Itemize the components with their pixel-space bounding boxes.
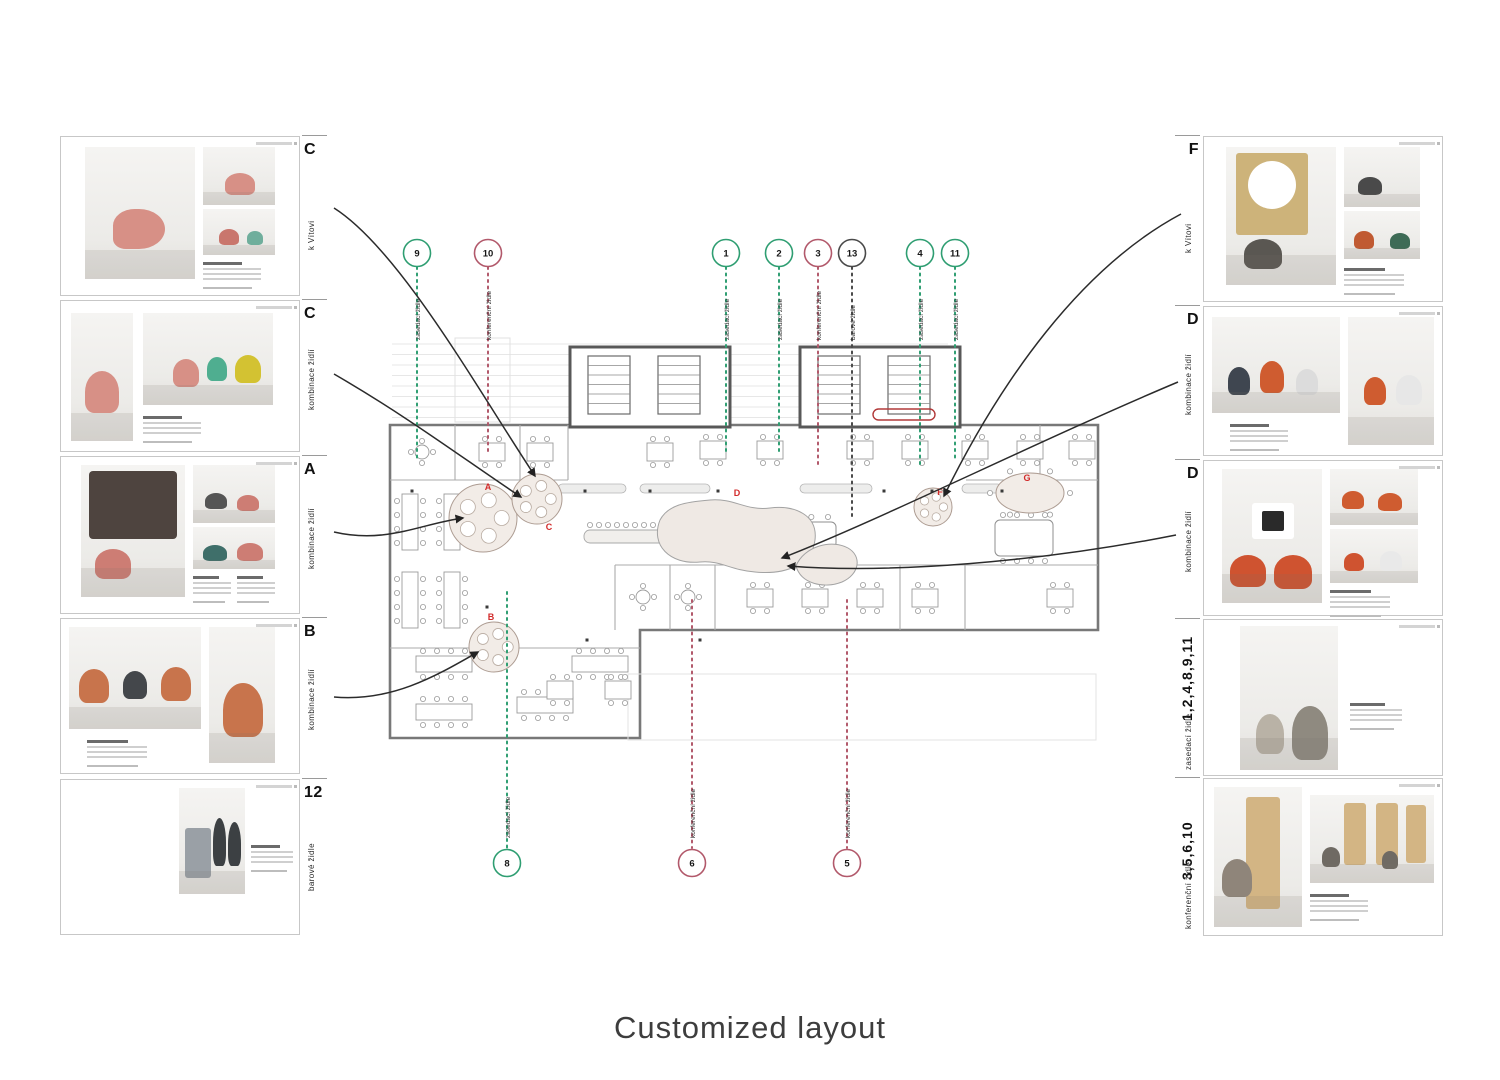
catalog-card-left-0: [60, 136, 300, 296]
card-page-header: [256, 142, 292, 145]
card-category-label: k Vítovi: [1184, 189, 1193, 253]
furniture-photo: [71, 313, 133, 441]
card-category-label: kombinace židlí: [1184, 508, 1193, 572]
chair: [632, 522, 637, 527]
chair: [864, 434, 869, 439]
furniture-shape: [1358, 177, 1382, 195]
chair: [576, 674, 581, 679]
chair: [462, 696, 467, 701]
pod-seat: [536, 507, 547, 518]
furniture-photo: [1240, 626, 1338, 770]
desk-cluster: [847, 441, 873, 459]
chair: [1050, 582, 1055, 587]
furniture-photo: [203, 209, 275, 255]
chair: [420, 590, 425, 595]
desk-cluster: [912, 589, 938, 607]
long-table: [572, 656, 628, 672]
chair: [1086, 434, 1091, 439]
desk-cluster: [747, 589, 773, 607]
pod-seat: [932, 513, 940, 521]
chair: [394, 604, 399, 609]
product-text-block: [143, 413, 201, 446]
chair: [530, 462, 535, 467]
chair: [462, 648, 467, 653]
conference-table: [995, 520, 1053, 556]
pod-seat: [520, 485, 531, 496]
plan-letter-A: A: [485, 482, 492, 492]
card-index-label: C: [304, 141, 326, 159]
furniture-shape: [1246, 797, 1280, 909]
chair: [521, 715, 526, 720]
chair: [750, 608, 755, 613]
furniture-shape: [237, 495, 259, 511]
leader-label-13: barové židle: [850, 305, 857, 340]
plan-letter-C: C: [546, 522, 553, 532]
furniture-photo: [1344, 147, 1420, 207]
chair: [1067, 490, 1072, 495]
callout-number-4: 4: [917, 248, 923, 259]
chair: [430, 449, 435, 454]
gutter-tick: [1175, 459, 1200, 460]
chair: [1020, 460, 1025, 465]
chair: [587, 522, 592, 527]
long-table: [416, 656, 472, 672]
callout-number-5: 5: [844, 858, 850, 869]
desk-cluster: [1069, 441, 1095, 459]
chair: [1072, 434, 1077, 439]
furniture-photo: [209, 627, 275, 763]
chair: [674, 594, 679, 599]
card-index-label: F: [1177, 141, 1199, 159]
gutter-tick: [302, 455, 327, 456]
chair: [436, 512, 441, 517]
desk-cluster: [647, 443, 673, 461]
card-category-label: k Vítovi: [307, 186, 316, 250]
furniture-shape: [1364, 377, 1386, 405]
desk-cluster: [962, 441, 988, 459]
gutter-tick: [302, 299, 327, 300]
terrace-outline: [628, 674, 1096, 740]
core-block: [800, 347, 960, 427]
furniture-shape: [228, 822, 241, 866]
chair: [394, 576, 399, 581]
furniture-shape: [203, 545, 227, 561]
furniture-shape: [1292, 706, 1328, 760]
chair: [1034, 460, 1039, 465]
corridor-counter: [800, 484, 872, 493]
furniture-shape: [1380, 551, 1402, 571]
furniture-shape: [247, 231, 263, 245]
leader-label-8: zasedací židle: [505, 796, 512, 838]
chair: [717, 460, 722, 465]
chair: [496, 436, 501, 441]
furniture-shape: [79, 669, 109, 703]
chair: [596, 522, 601, 527]
chair: [685, 583, 690, 588]
furniture-shape: [1256, 714, 1284, 754]
furniture-shape: [85, 371, 119, 413]
furniture-shape: [219, 229, 239, 245]
chair: [1000, 512, 1005, 517]
chair: [651, 594, 656, 599]
chair: [1042, 558, 1047, 563]
leader-label-2: zasedací židle: [777, 298, 784, 340]
chair: [717, 434, 722, 439]
gutter-tick: [1175, 135, 1200, 136]
facade-bay: [455, 338, 510, 422]
long-table: [402, 572, 418, 628]
chair: [641, 522, 646, 527]
card-index-label: 12: [304, 784, 326, 802]
chair: [614, 522, 619, 527]
card-category-label: kombinace židlí: [307, 346, 316, 410]
gutter-tick: [302, 617, 327, 618]
furniture-photo: [1212, 317, 1340, 413]
desk-cluster: [857, 589, 883, 607]
chair: [420, 696, 425, 701]
product-text-block: [1310, 891, 1368, 924]
card-category-label: barové židle: [307, 827, 316, 891]
chair: [905, 434, 910, 439]
chair: [905, 460, 910, 465]
furniture-shape: [237, 543, 263, 561]
card-page-header: [256, 306, 292, 309]
gutter-tick: [1175, 618, 1200, 619]
desk-cluster: [1047, 589, 1073, 607]
furniture-photo: [1330, 469, 1418, 525]
chair: [408, 449, 413, 454]
chair: [420, 648, 425, 653]
chair: [394, 498, 399, 503]
furniture-shape: [1406, 805, 1426, 863]
furniture-photo: [1226, 147, 1336, 285]
callout-number-6: 6: [689, 858, 694, 869]
leader-label-1: zasedací židle: [724, 298, 731, 340]
chair: [1034, 434, 1039, 439]
callout-number-1: 1: [723, 248, 729, 259]
chair: [760, 434, 765, 439]
chair: [436, 590, 441, 595]
chair: [436, 526, 441, 531]
chair: [1020, 434, 1025, 439]
chair: [462, 674, 467, 679]
chair: [535, 715, 540, 720]
chair: [874, 608, 879, 613]
furniture-shape: [1382, 851, 1398, 869]
furniture-shape: [1228, 367, 1250, 395]
gutter-tick: [302, 135, 327, 136]
furniture-shape: [207, 357, 227, 381]
card-category-label: kombinace židlí: [1184, 351, 1193, 415]
furniture-shape: [235, 355, 261, 383]
furniture-shape: [113, 209, 165, 249]
furniture-shape: [1344, 553, 1364, 571]
chair: [650, 522, 655, 527]
pod-seat: [481, 528, 496, 543]
chair: [420, 498, 425, 503]
chair: [819, 608, 824, 613]
chair: [605, 522, 610, 527]
catalog-card-right-3: [1203, 619, 1443, 776]
furniture-shape: [223, 683, 263, 737]
chair: [874, 582, 879, 587]
catalog-card-right-4: [1203, 778, 1443, 936]
furniture-photo: [193, 465, 275, 523]
card-page-header: [1399, 312, 1435, 315]
chair: [420, 604, 425, 609]
furniture-shape: [1260, 361, 1284, 393]
leader-label-4: zasedací židle: [918, 298, 925, 340]
catalog-card-left-1: [60, 300, 300, 452]
catalog-card-left-4: [60, 779, 300, 935]
chair: [987, 490, 992, 495]
chair: [420, 674, 425, 679]
furniture-shape: [173, 359, 199, 387]
chair: [640, 605, 645, 610]
chair: [640, 583, 645, 588]
chair: [550, 674, 555, 679]
chair: [394, 540, 399, 545]
callout-number-9: 9: [414, 248, 419, 259]
chair: [623, 522, 628, 527]
pod-seat: [520, 502, 531, 513]
chair: [979, 460, 984, 465]
chair: [420, 512, 425, 517]
chair: [434, 696, 439, 701]
chair: [462, 576, 467, 581]
catalog-card-right-1: [1203, 306, 1443, 456]
furniture-photo: [81, 465, 185, 597]
chair: [394, 590, 399, 595]
pod-seat: [477, 633, 488, 644]
product-text-block: [193, 573, 231, 606]
chair: [764, 608, 769, 613]
card-page-header: [1399, 784, 1435, 787]
plan-node-dot: [1001, 490, 1004, 493]
chair: [929, 608, 934, 613]
card-index-label: A: [304, 461, 326, 479]
desk-cluster: [902, 441, 928, 459]
pod-seat: [481, 493, 496, 508]
furniture-photo: [1310, 795, 1434, 883]
furniture-shape: [1378, 493, 1402, 511]
chair: [965, 460, 970, 465]
furniture-photo: [1348, 317, 1434, 445]
gutter-tick: [1175, 305, 1200, 306]
gutter-tick: [1175, 777, 1200, 778]
chair: [436, 618, 441, 623]
chair: [448, 674, 453, 679]
chair: [805, 582, 810, 587]
chair: [825, 514, 830, 519]
furniture-photo: [203, 147, 275, 205]
furniture-shape: [1322, 847, 1340, 867]
chair: [462, 604, 467, 609]
chair: [482, 436, 487, 441]
chair: [860, 582, 865, 587]
chair: [1014, 512, 1019, 517]
catalog-card-left-2: [60, 456, 300, 614]
product-text-block: [1350, 700, 1402, 733]
chair: [419, 460, 424, 465]
furniture-shape: [1244, 239, 1282, 269]
chair: [622, 674, 627, 679]
furniture-photo: [1344, 211, 1420, 259]
chair: [482, 462, 487, 467]
card-category-label: kombinace židlí: [307, 505, 316, 569]
chair: [1086, 460, 1091, 465]
product-text-block: [237, 573, 275, 606]
chair: [1047, 469, 1052, 474]
product-text-block: [203, 259, 261, 292]
chair: [535, 689, 540, 694]
chair: [420, 722, 425, 727]
furniture-shape: [205, 493, 227, 509]
callout-number-3: 3: [815, 248, 820, 259]
chair: [629, 594, 634, 599]
card-page-header: [1399, 625, 1435, 628]
chair: [436, 498, 441, 503]
chair: [436, 604, 441, 609]
chair: [604, 648, 609, 653]
chair: [462, 618, 467, 623]
plan-letter-G: G: [1023, 473, 1030, 483]
furniture-shape: [1390, 233, 1410, 249]
pod-seat: [536, 480, 547, 491]
pod-seat: [493, 628, 504, 639]
pod-seat: [460, 522, 475, 537]
chair: [664, 436, 669, 441]
furniture-shape: [1296, 369, 1318, 395]
pod-seat: [477, 650, 488, 661]
furniture-shape: [1262, 511, 1284, 531]
core-block: [570, 347, 730, 427]
catalog-card-right-0: [1203, 136, 1443, 302]
leader-label-9: zasedací židle: [415, 298, 422, 340]
long-table: [402, 494, 418, 550]
chair: [448, 648, 453, 653]
chair: [760, 460, 765, 465]
card-page-header: [256, 785, 292, 788]
plan-letter-B: B: [488, 612, 495, 622]
pod-seat: [494, 511, 509, 526]
furniture-shape: [1354, 231, 1374, 249]
plan-node-dot: [699, 639, 702, 642]
chair: [521, 689, 526, 694]
chair: [436, 540, 441, 545]
chair: [434, 648, 439, 653]
chair: [419, 438, 424, 443]
chair: [915, 608, 920, 613]
gutter-tick: [302, 778, 327, 779]
callout-number-2: 2: [776, 248, 781, 259]
furniture-photo: [69, 627, 201, 729]
chair: [965, 434, 970, 439]
card-category-label: kombinace židlí: [307, 666, 316, 730]
desk-cluster: [605, 681, 631, 699]
desk-cluster: [700, 441, 726, 459]
chair: [436, 576, 441, 581]
chair: [685, 605, 690, 610]
furniture-shape: [89, 471, 177, 539]
chair: [650, 462, 655, 467]
chair: [1064, 582, 1069, 587]
furniture-shape: [185, 828, 211, 878]
chair: [1042, 512, 1047, 517]
card-index-label: B: [304, 623, 326, 641]
card-page-header: [1399, 142, 1435, 145]
long-table: [416, 704, 472, 720]
chair: [550, 700, 555, 705]
chair: [590, 648, 595, 653]
chair: [1028, 558, 1033, 563]
chair: [764, 582, 769, 587]
chair: [929, 582, 934, 587]
outer-wall: [390, 425, 1098, 738]
product-text-block: [1344, 265, 1404, 298]
furniture-shape: [161, 667, 191, 701]
chair: [774, 460, 779, 465]
chair: [544, 462, 549, 467]
chair: [462, 722, 467, 727]
furniture-shape: [1344, 803, 1366, 865]
desk-cluster: [479, 443, 505, 461]
card-category-label: zasedací židle: [1184, 706, 1193, 770]
furniture-photo: [85, 147, 195, 279]
chair: [915, 582, 920, 587]
layout-board: ACBDFGzasedací židle9konferenční židle10…: [0, 0, 1500, 1080]
furniture-shape: [95, 549, 131, 579]
chair: [564, 700, 569, 705]
chair: [664, 462, 669, 467]
card-index-label: C: [304, 305, 326, 323]
furniture-photo: [1330, 529, 1418, 583]
chair: [394, 512, 399, 517]
catalog-card-left-3: [60, 618, 300, 774]
chair: [448, 696, 453, 701]
chair: [1050, 608, 1055, 613]
plan-node-dot: [649, 490, 652, 493]
furniture-shape: [123, 671, 147, 699]
leader-label-3: konferenční židle: [816, 290, 823, 340]
chair: [1064, 608, 1069, 613]
leader-label-6: konferenční židle: [690, 788, 697, 838]
chair: [549, 715, 554, 720]
chair: [608, 700, 613, 705]
chair: [650, 436, 655, 441]
chair: [703, 434, 708, 439]
reception-desk: [584, 530, 668, 543]
leader-label-11: zasedací židle: [953, 298, 960, 340]
chair: [979, 434, 984, 439]
plan-node-dot: [584, 490, 587, 493]
furniture-shape: [1274, 555, 1312, 589]
product-text-block: [1330, 587, 1390, 620]
desk-cluster: [527, 443, 553, 461]
chair: [394, 618, 399, 623]
chair: [564, 674, 569, 679]
chair: [1007, 469, 1012, 474]
plan-node-dot: [586, 639, 589, 642]
pod-seat: [939, 503, 947, 511]
card-index-label: D: [1177, 465, 1199, 483]
furniture-photo: [143, 313, 273, 405]
furniture-photo: [179, 788, 245, 894]
furniture-shape: [213, 818, 226, 866]
chair: [618, 648, 623, 653]
leader-label-5: konferenční židle: [845, 788, 852, 838]
long-table: [444, 572, 460, 628]
